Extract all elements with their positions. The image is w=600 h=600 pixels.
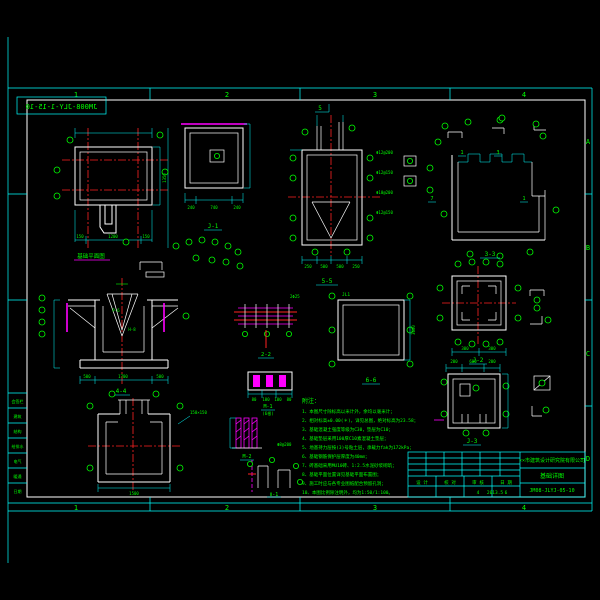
notes-block: 附注： 1、本图尺寸除标高以米计外，余均以毫米计； 2、相对标高±0.00(＊)… xyxy=(302,397,418,496)
signature-column: 会签栏 建筑 结构 给排水 电气 暖通 日期 xyxy=(8,393,27,494)
drawing-title: 基础详图 xyxy=(540,472,564,480)
rebar-label: Φ12@200 xyxy=(376,150,393,155)
sheet-total: 6 xyxy=(505,490,508,496)
field-label: 日 期 xyxy=(500,480,512,486)
note-item: 9、施工时应与各专业图纸配合预留孔洞； xyxy=(302,480,386,487)
sign-row: 建筑 xyxy=(14,413,22,419)
detail-subtitle: (6根) xyxy=(262,410,273,416)
stamp-text: JM008-JLY-1-15-10 xyxy=(26,103,98,111)
dim-label: 200 xyxy=(488,359,496,364)
sign-row: 电气 xyxy=(14,458,22,464)
rebar-label: Φ10@200 xyxy=(376,190,393,195)
note-item: 2、相对标高±0.00(＊)，详见总图，绝对标高为23.58； xyxy=(302,417,418,424)
sign-row: 日期 xyxy=(14,488,22,494)
note-item: 8、基础平面位置详见基础平面布置图； xyxy=(302,471,381,478)
sign-row: 会签栏 xyxy=(12,398,24,404)
note-item: 10、本图比例除注明外，均为1:50/1:100。 xyxy=(302,489,393,496)
view-j2-footing: 300 300 J-2 xyxy=(437,259,551,364)
dim-label: 740 xyxy=(210,205,218,210)
dim-label: 100 xyxy=(274,397,282,402)
dim-label: 500 xyxy=(83,374,91,379)
dim-label: 250 xyxy=(352,264,360,269)
detail-title: M-1 xyxy=(263,404,272,410)
dim-label: 1700 xyxy=(118,374,128,379)
view-rebar-cluster xyxy=(140,237,243,277)
mark-label: H-8 xyxy=(128,327,136,332)
view-title: J-3 xyxy=(467,438,478,445)
dim-label: 500 xyxy=(156,374,164,379)
hole-note: 150×150 xyxy=(190,410,207,415)
dim-label: 3600 xyxy=(411,325,416,335)
rebar-label: Φ8@200 xyxy=(277,442,292,447)
sign-row: 结构 xyxy=(14,428,22,434)
view-title: 基础平面图 xyxy=(77,252,105,260)
detail-title: M-2 xyxy=(242,454,251,460)
view-j1-section: 240 740 240 J-1 xyxy=(181,124,250,230)
dim-label: 150 xyxy=(76,234,84,239)
axis-mark: 1 xyxy=(460,150,463,156)
rebar-label: 2Φ25 xyxy=(290,294,300,299)
dim-label: 250 xyxy=(304,264,312,269)
dim-label: 200 xyxy=(450,359,458,364)
dim-label: 600 xyxy=(469,359,477,364)
zone-right-b: B xyxy=(586,244,590,252)
note-item: 5、地基持力层按(3)号粘土层，承载力fak为172kPa； xyxy=(302,444,414,451)
dim-label: 80 xyxy=(287,397,292,402)
view-6-6-footing: JL1 3600 6-6 xyxy=(329,292,416,384)
notes-header: 附注： xyxy=(302,397,320,405)
dim-label: 240 xyxy=(233,205,241,210)
note-item: 3、基础混凝土强度等级为C30，垫层为C10； xyxy=(302,426,393,433)
section-mark: 5 xyxy=(318,105,322,112)
view-2-2-beam: 2Φ25 2-2 xyxy=(234,294,300,358)
company-name: ××市建筑设计研究院有限公司 xyxy=(519,457,585,464)
note-item: 6、基础钢筋保护层厚度为40mm； xyxy=(302,453,370,460)
dim-label: 300 xyxy=(488,346,496,351)
view-title: 2-2 xyxy=(261,352,271,358)
zone-bottom-1: 1 xyxy=(74,504,78,512)
dim-label: 150 xyxy=(142,234,150,239)
sheet-number: 4 xyxy=(477,490,480,496)
dim-label: 80 xyxy=(252,397,257,402)
view-title: 6-6 xyxy=(366,377,377,384)
view-pit-plan-bottom: 1500 150×150 xyxy=(87,391,207,496)
mark-label: P-6 xyxy=(112,308,120,313)
view-4-4-pit-section: P-6 H-8 500 1700 500 4-4 xyxy=(39,278,189,395)
view-3-3-wall-plan: 1 3 7 1 3-3 xyxy=(404,115,559,259)
field-label: 审 核 xyxy=(472,479,484,486)
dim-label: 500 xyxy=(336,264,344,269)
view-title: 5-5 xyxy=(322,278,333,285)
zone-right-c: C xyxy=(586,350,590,358)
zone-bottom-3: 3 xyxy=(373,504,377,512)
zone-top-2: 2 xyxy=(225,91,229,99)
dim-label: 240 xyxy=(187,205,195,210)
axis-mark: 1 xyxy=(522,196,525,202)
dim-label: 300 xyxy=(461,346,469,351)
dim-label: 1200 xyxy=(108,234,118,239)
note-item: 7、砖基础采用MU10砖、1:2.5水泥砂浆砌筑； xyxy=(302,462,397,469)
zone-bottom-4: 4 xyxy=(522,504,526,512)
sign-row: 给排水 xyxy=(12,443,24,449)
zone-right-d: D xyxy=(586,455,590,463)
rebar-label: Φ12@150 xyxy=(376,210,393,215)
zone-bottom-2: 2 xyxy=(225,504,229,512)
dim-label: 1350 xyxy=(162,173,167,183)
zone-top-4: 4 xyxy=(522,91,526,99)
cad-drawing-sheet: { "sheet": { "zones_top": ["1","2","3","… xyxy=(0,0,600,600)
field-date: 2013.5 xyxy=(487,490,504,496)
view-title: 4-4 xyxy=(116,388,127,395)
field-label: 设 计 xyxy=(416,479,428,486)
zone-top-3: 3 xyxy=(373,91,377,99)
view-member-details: 80 100 100 80 M-1 (6根) Φ8@200 M-2 Ⅱ-1 xyxy=(230,372,303,498)
beam-tag: JL1 xyxy=(342,292,350,298)
zone-top-1: 1 xyxy=(74,91,78,99)
note-item: 4、基础垫层采用100厚C10素混凝土垫层； xyxy=(302,435,388,442)
zone-right-a: A xyxy=(586,138,591,146)
axis-mark: 7 xyxy=(430,196,433,202)
title-block: 设 计 校 对 审 核 日 期 4 6 ××市建筑设计研究院有限公司 基础详图 … xyxy=(408,452,585,497)
note-item: 1、本图尺寸除标高以米计外，余均以毫米计； xyxy=(302,408,395,415)
rebar-label: Φ12@150 xyxy=(376,170,393,175)
view-5-5-section: 5 Φ12@200 Φ12@150 Φ10@200 Φ12@150 250 50… xyxy=(288,104,393,285)
dim-label: 500 xyxy=(320,264,328,269)
view-title: 3-3 xyxy=(485,251,496,258)
drawing-number: JM08-JLYJ-05-10 xyxy=(529,488,574,494)
dim-label: 1500 xyxy=(129,491,139,496)
view-j3-pit-plan: 200 600 200 J-3 xyxy=(434,359,550,445)
view-title: J-1 xyxy=(208,223,219,230)
dim-label: 100 xyxy=(262,397,270,402)
sign-row: 暖通 xyxy=(14,473,22,479)
axis-mark: 3 xyxy=(496,150,499,156)
drawing-canvas: 1 2 3 4 1 2 3 4 A B C D JM008-JLY-1-15-1… xyxy=(0,0,600,600)
view-foundation-plan: 150 1200 150 1350 基础平面图 xyxy=(54,128,170,260)
field-label: 校 对 xyxy=(444,479,456,486)
